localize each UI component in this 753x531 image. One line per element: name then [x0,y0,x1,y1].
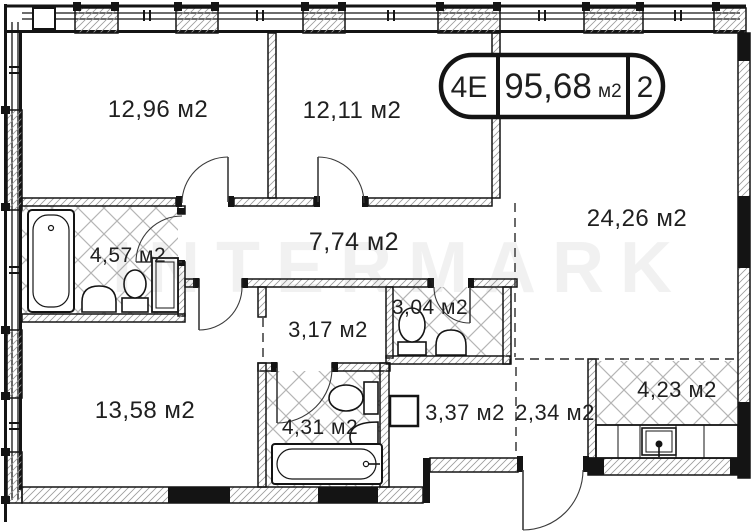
toilet-tank [398,342,426,355]
title-box-area: 95,68 [504,67,592,106]
title-box: 4E 95,68 м2 2 [441,55,663,117]
room-label-corridor: 7,74 м2 [309,228,399,256]
door-bedroom-2 [318,157,364,203]
toilet-bowl [329,385,363,411]
exterior-wall-right [738,33,750,478]
kitchen-counter [596,425,738,458]
room-label-entry: 2,34 м2 [515,400,595,425]
sink [82,286,116,312]
room-label-bedroom-1: 12,96 м2 [108,96,209,123]
room-label-hallway: 3,37 м2 [425,400,505,425]
room-label-bathroom-1: 4,57 м2 [90,244,166,267]
vent-shaft [390,396,418,426]
floor-plan: INTERMARK 12,96 м2 12,11 м2 24,26 м2 7,7… [0,0,753,531]
door-entrance [523,470,583,530]
room-label-living-room: 24,26 м2 [587,205,688,232]
toilet-tank [364,382,378,414]
exterior-wall-top [4,2,746,33]
title-box-block: 4E [451,71,488,104]
title-box-area-unit: м2 [598,81,622,102]
bathtub-faucet [363,461,368,466]
room-label-bedroom-3: 13,58 м2 [95,397,196,424]
corner-column [33,8,55,29]
room-label-hall: 3,17 м2 [288,317,368,342]
room-label-kitchen: 4,23 м2 [637,377,717,402]
title-box-room-count: 2 [637,71,654,104]
room-label-bathroom-2: 4,31 м2 [282,416,358,439]
sink [436,330,466,355]
room-label-wc: 3,04 м2 [392,296,468,319]
door-bedroom-1 [182,157,228,203]
exterior-wall-left [1,4,22,522]
bathtub-drain [49,226,54,231]
room-label-bedroom-2: 12,11 м2 [303,97,402,124]
